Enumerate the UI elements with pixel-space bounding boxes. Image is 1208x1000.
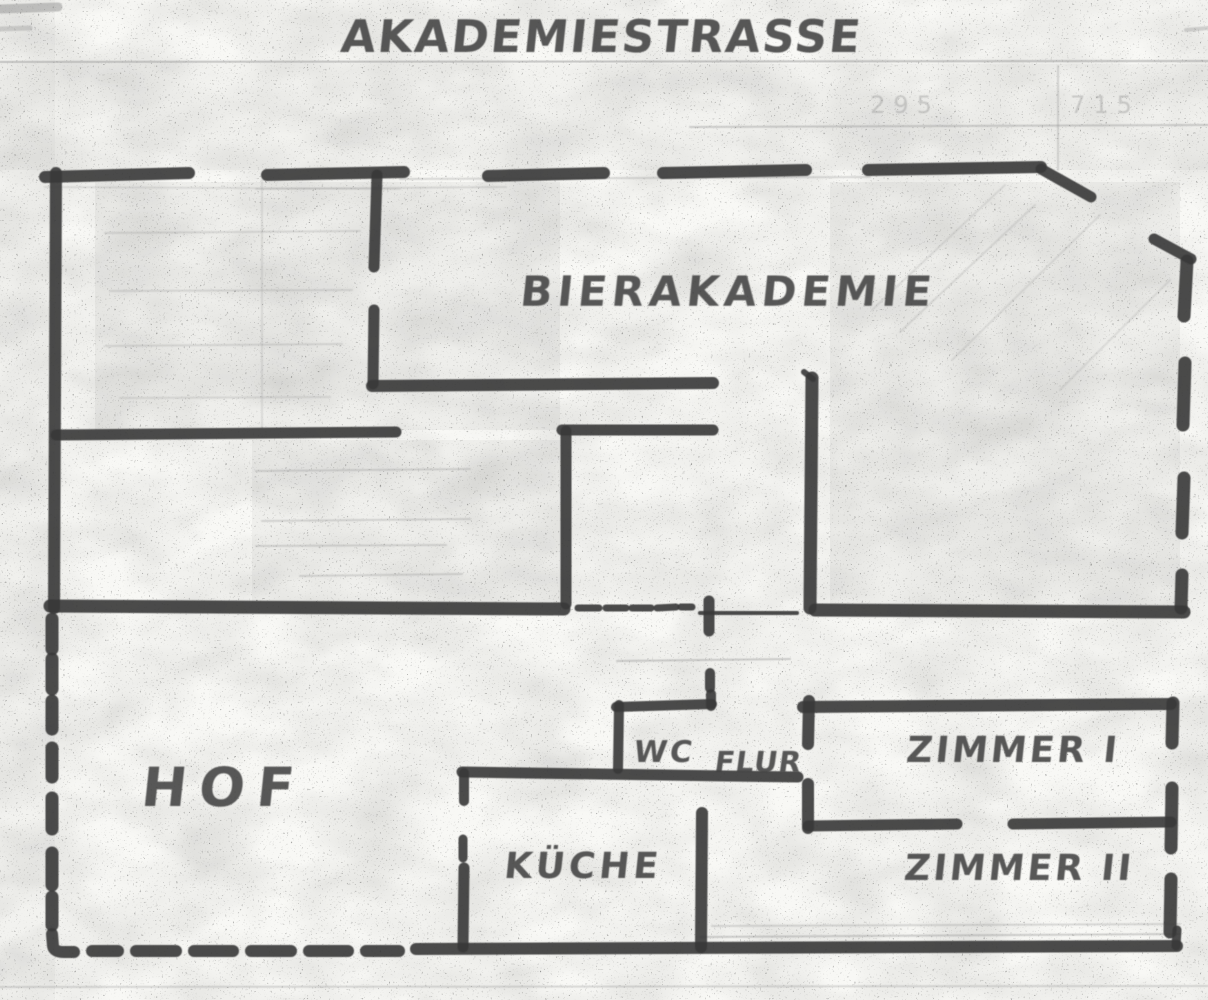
hallway-label: FLUR: [712, 745, 804, 779]
wc-label: WC: [631, 735, 697, 770]
ghost-number-right: 715: [1070, 91, 1140, 119]
ghost-number-left: 295: [870, 91, 940, 119]
building-label: BIERAKADEMIE: [518, 267, 939, 316]
scanned-floorplan-page: AKADEMIESTRASSE BIERAKADEMIE HOF WC FLUR…: [0, 0, 1208, 1000]
room1-label: ZIMMER I: [904, 729, 1122, 771]
kitchen-label: KÜCHE: [502, 845, 664, 887]
street-label: AKADEMIESTRASSE: [338, 10, 864, 63]
room2-label: ZIMMER II: [902, 847, 1136, 889]
floorplan-canvas: AKADEMIESTRASSE BIERAKADEMIE HOF WC FLUR…: [0, 0, 1208, 1000]
courtyard-label: HOF: [139, 756, 310, 819]
